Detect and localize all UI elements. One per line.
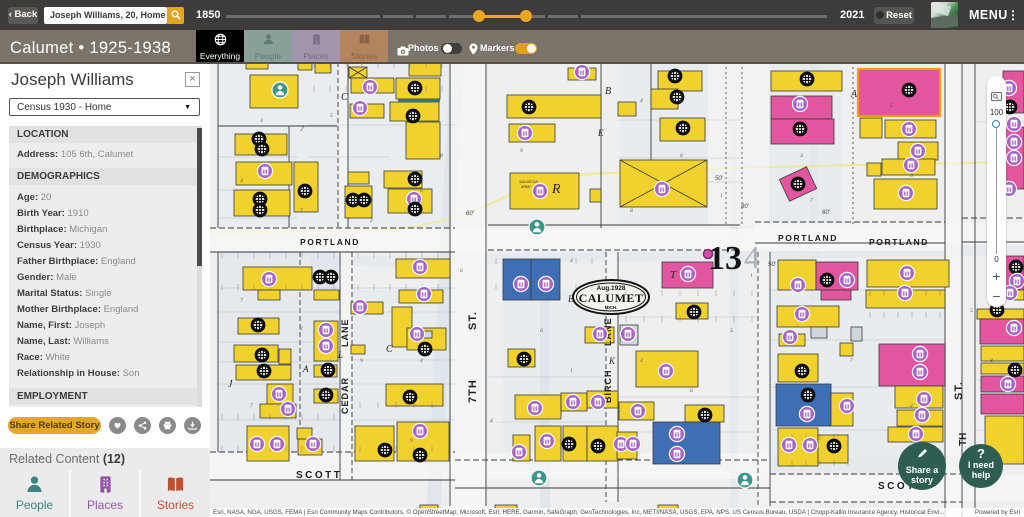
svg-text:7: 7: [240, 298, 243, 304]
svg-text:PORTLAND: PORTLAND: [778, 233, 838, 243]
svg-text:60': 60': [466, 211, 475, 217]
svg-text:ST.: ST.: [467, 311, 479, 330]
svg-text:J: J: [228, 379, 233, 390]
svg-text:60': 60': [822, 210, 831, 216]
svg-text:13: 13: [708, 240, 742, 277]
svg-text:80': 80': [741, 204, 750, 210]
svg-text:9: 9: [410, 438, 413, 444]
svg-text:8: 8: [440, 153, 443, 159]
svg-text:R: R: [551, 182, 561, 197]
svg-text:7: 7: [250, 403, 253, 409]
svg-text:3: 3: [259, 118, 263, 124]
svg-text:C: C: [386, 344, 393, 355]
svg-text:6: 6: [680, 153, 683, 159]
svg-text:MICH.: MICH.: [605, 305, 618, 310]
svg-text:50': 50': [715, 176, 724, 182]
svg-text:1: 1: [750, 273, 753, 279]
svg-text:8: 8: [910, 173, 913, 179]
svg-text:50': 50': [768, 262, 777, 268]
svg-text:ST.: ST.: [953, 381, 965, 400]
svg-text:9: 9: [360, 358, 363, 364]
svg-text:CALUMET: CALUMET: [579, 291, 644, 305]
svg-text:E: E: [597, 128, 604, 138]
svg-text:2: 2: [300, 326, 303, 332]
svg-text:2: 2: [910, 403, 913, 409]
svg-text:1: 1: [570, 368, 573, 374]
svg-text:2: 2: [370, 218, 373, 224]
svg-text:1: 1: [720, 193, 723, 199]
svg-text:PORTLAND: PORTLAND: [869, 237, 929, 247]
svg-text:A: A: [850, 89, 858, 100]
svg-text:4: 4: [744, 239, 760, 275]
svg-text:7: 7: [850, 358, 853, 364]
svg-text:5: 5: [330, 113, 333, 119]
svg-text:5: 5: [420, 188, 423, 194]
svg-text:ARMY: ARMY: [520, 185, 532, 189]
svg-text:5: 5: [970, 308, 973, 314]
svg-text:TH: TH: [958, 433, 969, 446]
svg-text:4: 4: [570, 257, 573, 264]
svg-text:C: C: [341, 92, 348, 103]
svg-text:6: 6: [690, 388, 693, 394]
svg-text:3: 3: [639, 358, 643, 364]
svg-text:4: 4: [420, 357, 423, 364]
svg-text:6: 6: [540, 328, 543, 334]
svg-text:T: T: [670, 269, 677, 281]
svg-text:A: A: [302, 364, 309, 374]
svg-text:2: 2: [340, 398, 343, 404]
svg-text:9: 9: [520, 148, 523, 154]
svg-text:7: 7: [810, 198, 813, 204]
svg-text:8: 8: [990, 358, 993, 364]
svg-text:SALVATION: SALVATION: [519, 180, 538, 184]
svg-text:7TH: 7TH: [467, 379, 479, 403]
svg-text:4: 4: [490, 417, 493, 424]
svg-text:3: 3: [799, 153, 803, 159]
svg-text:6: 6: [460, 268, 463, 274]
svg-text:7: 7: [300, 208, 303, 214]
svg-text:LANE: LANE: [340, 319, 350, 348]
svg-text:5: 5: [730, 328, 733, 334]
svg-text:PORTLAND: PORTLAND: [300, 237, 360, 247]
svg-text:K: K: [608, 356, 616, 366]
svg-text:5: 5: [890, 103, 893, 109]
svg-text:4: 4: [640, 97, 643, 104]
svg-text:SCOTT: SCOTT: [296, 470, 342, 481]
svg-text:8: 8: [630, 208, 633, 214]
svg-text:3: 3: [239, 178, 243, 184]
svg-text:L: L: [337, 350, 343, 360]
svg-text:CEDAR: CEDAR: [340, 377, 350, 414]
svg-text:B: B: [605, 86, 611, 97]
